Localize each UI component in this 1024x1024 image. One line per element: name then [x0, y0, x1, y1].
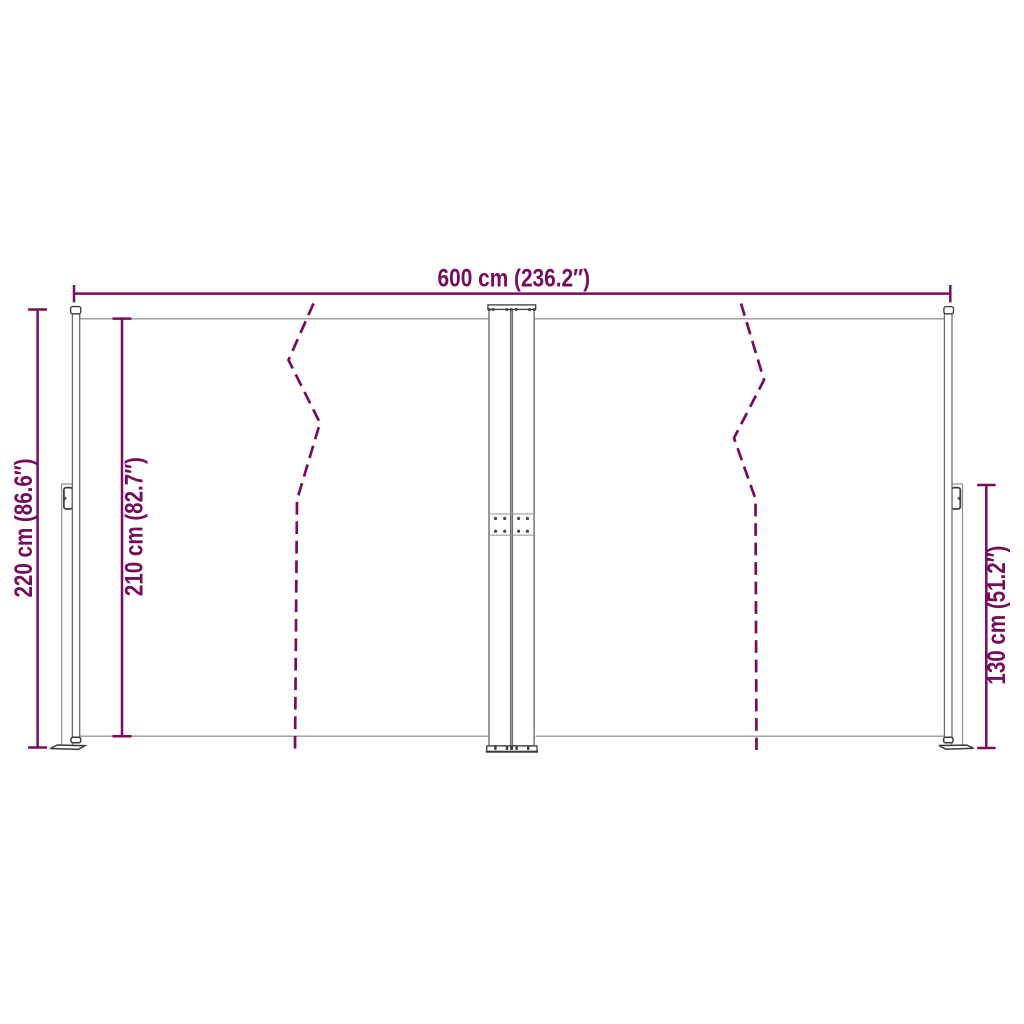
svg-text:220 cm (86.6″): 220 cm (86.6″)	[10, 459, 38, 598]
svg-text:600 cm (236.2″): 600 cm (236.2″)	[438, 265, 591, 293]
svg-text:210 cm (82.7″): 210 cm (82.7″)	[120, 457, 148, 596]
svg-text:130 cm (51.2″): 130 cm (51.2″)	[983, 546, 1011, 685]
